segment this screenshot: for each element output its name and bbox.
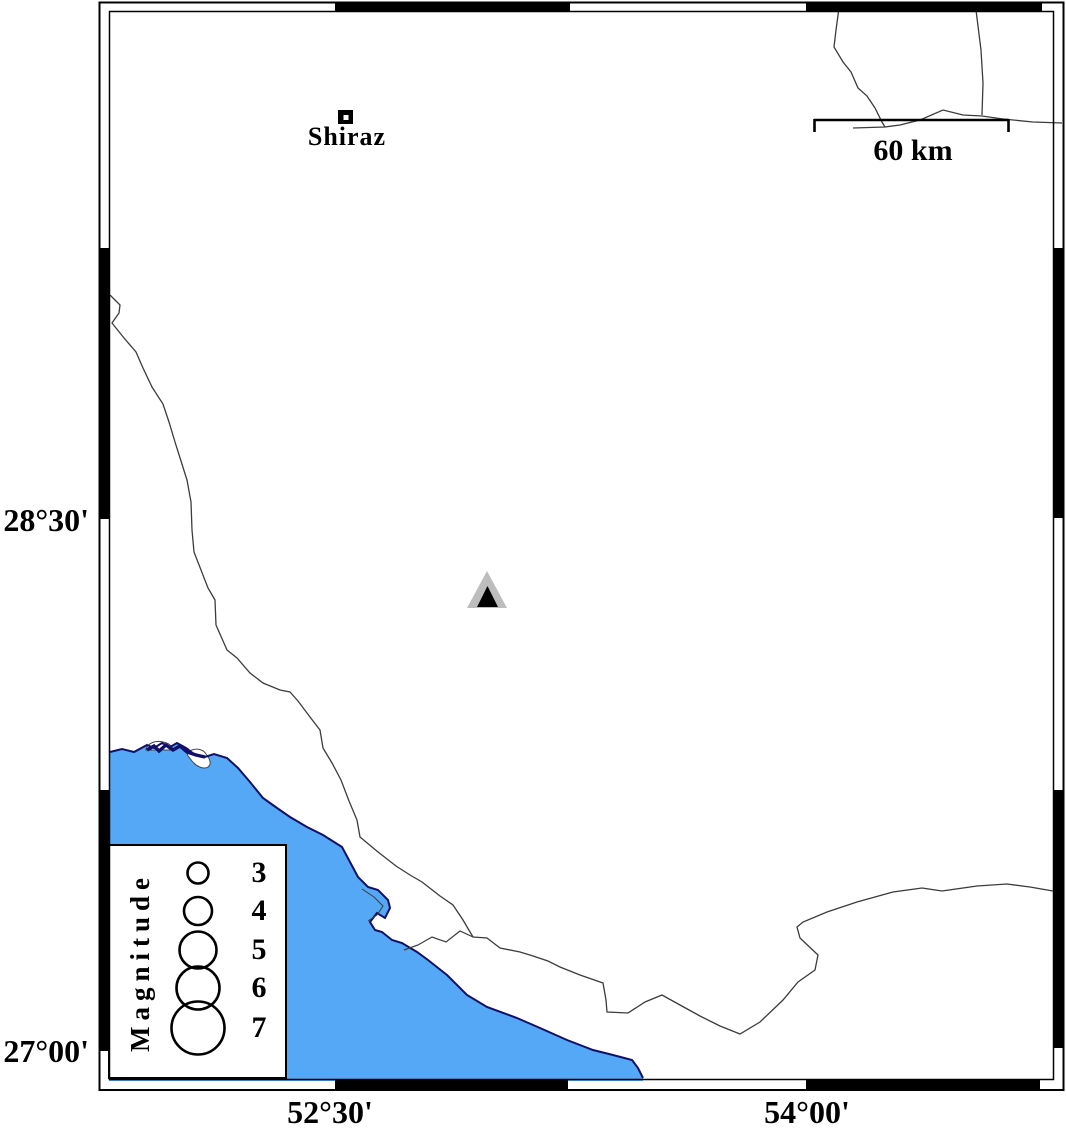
lon-label-52-30: 52°30' — [260, 1095, 400, 1129]
legend-value-5: 5 — [236, 931, 282, 969]
map-figure: 28°30' 27°00' 52°30' 54°00' Shiraz 60 km… — [0, 0, 1066, 1129]
legend-title: Magnitude — [123, 847, 157, 1077]
boundary-north-b — [976, 10, 983, 115]
legend-value-7: 7 — [236, 1009, 282, 1047]
legend-value-6: 6 — [236, 969, 282, 1007]
lat-label-28-30: 28°30' — [0, 503, 89, 537]
boundary-north-a — [834, 8, 885, 127]
lat-label-27-00: 27°00' — [0, 1034, 89, 1068]
boundary-coastal-branch — [404, 931, 473, 950]
city-label-shiraz: Shiraz — [297, 124, 397, 150]
legend-value-3: 3 — [236, 854, 282, 892]
lon-label-54-00: 54°00' — [737, 1095, 877, 1129]
station-marker — [467, 571, 507, 608]
scale-bar-label: 60 km — [843, 136, 983, 166]
scale-bar — [814, 119, 1009, 132]
legend-value-4: 4 — [236, 892, 282, 930]
map-canvas — [0, 0, 1066, 1129]
